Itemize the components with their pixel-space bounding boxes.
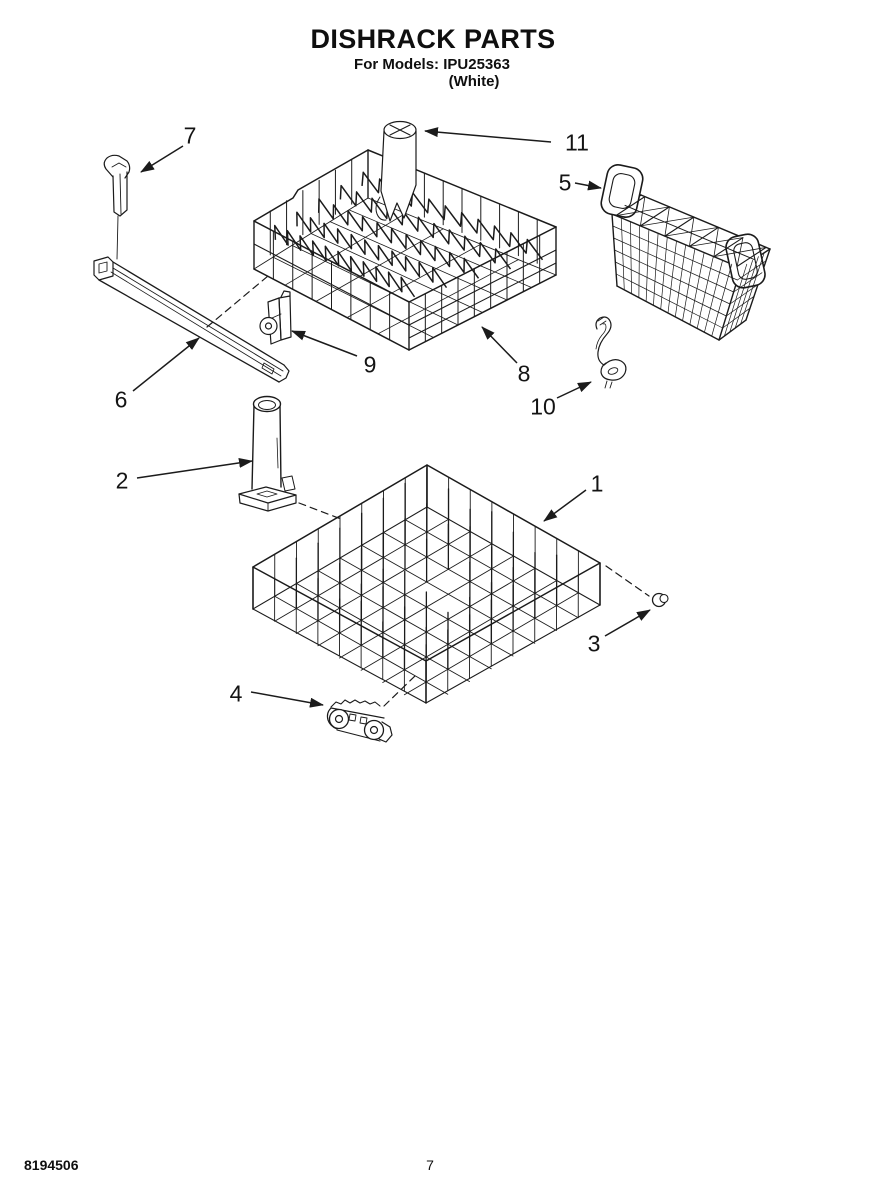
clip-part-10: [596, 317, 626, 388]
feed-tower-part-11: [376, 122, 416, 222]
callout-3: 3: [588, 631, 601, 658]
callout-2: 2: [116, 468, 129, 495]
callout-4: 4: [230, 681, 243, 708]
roller-assembly-part-4: [327, 700, 392, 742]
lower-dishrack-part-1: [253, 465, 600, 703]
support-post-part-2: [239, 397, 296, 512]
end-cap-part-3: [653, 594, 669, 607]
callout-1: 1: [591, 471, 604, 498]
callout-10: 10: [530, 394, 556, 421]
roller-bracket-part-9: [260, 291, 291, 344]
clip-part-7: [104, 155, 129, 259]
callout-9: 9: [364, 352, 377, 379]
callout-6: 6: [115, 387, 128, 414]
rail-part-6: [94, 257, 289, 382]
exploded-parts-diagram: [0, 0, 869, 1200]
callout-5: 5: [559, 170, 572, 197]
callout-7: 7: [184, 123, 197, 150]
page-number: 7: [426, 1157, 434, 1173]
silverware-basket-part-5: [599, 163, 770, 340]
parts-catalog-page: DISHRACK PARTS For Models: IPU25363 (Whi…: [0, 0, 869, 1200]
document-number: 8194506: [24, 1157, 79, 1173]
callout-11: 11: [565, 130, 589, 157]
callout-8: 8: [518, 361, 531, 388]
